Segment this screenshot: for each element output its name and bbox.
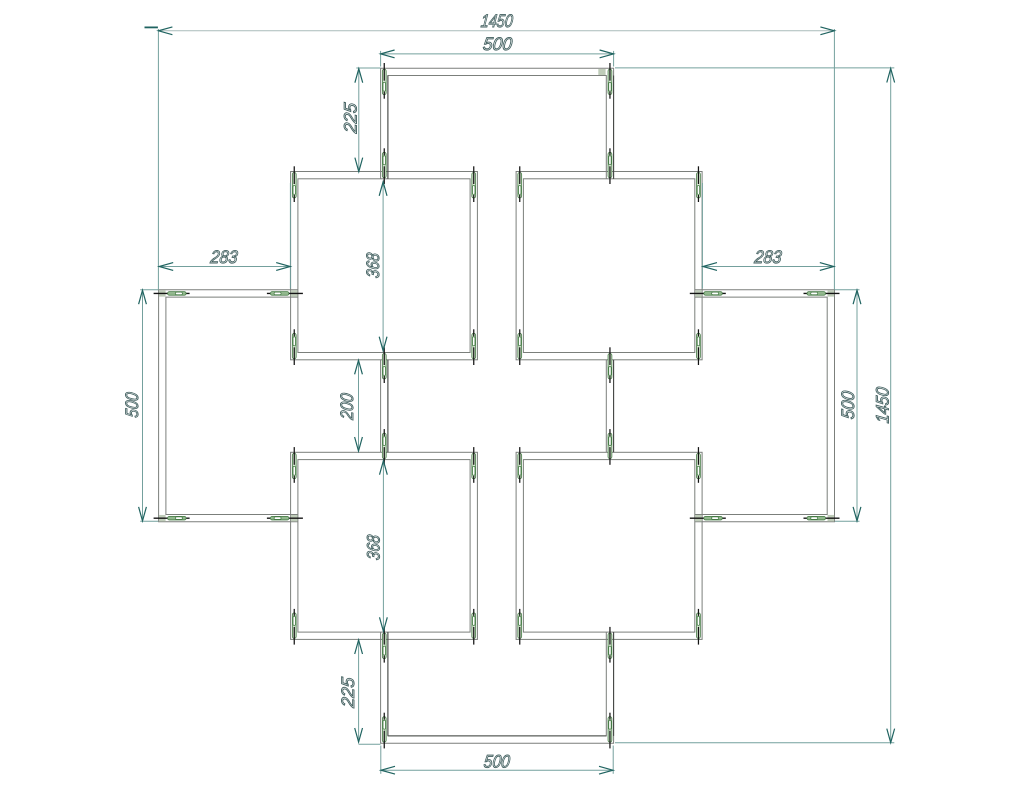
svg-text:283: 283 bbox=[753, 246, 784, 267]
svg-text:283: 283 bbox=[209, 246, 240, 267]
svg-text:500: 500 bbox=[482, 34, 513, 54]
svg-text:368: 368 bbox=[363, 251, 384, 279]
svg-text:500: 500 bbox=[838, 390, 859, 420]
svg-text:200: 200 bbox=[337, 392, 357, 422]
svg-text:225: 225 bbox=[338, 675, 358, 709]
svg-text:500: 500 bbox=[483, 751, 512, 771]
svg-text:500: 500 bbox=[122, 391, 143, 419]
svg-text:1450: 1450 bbox=[480, 12, 514, 32]
svg-text:368: 368 bbox=[363, 533, 384, 561]
svg-text:225: 225 bbox=[341, 101, 361, 135]
svg-text:1450: 1450 bbox=[872, 386, 893, 425]
